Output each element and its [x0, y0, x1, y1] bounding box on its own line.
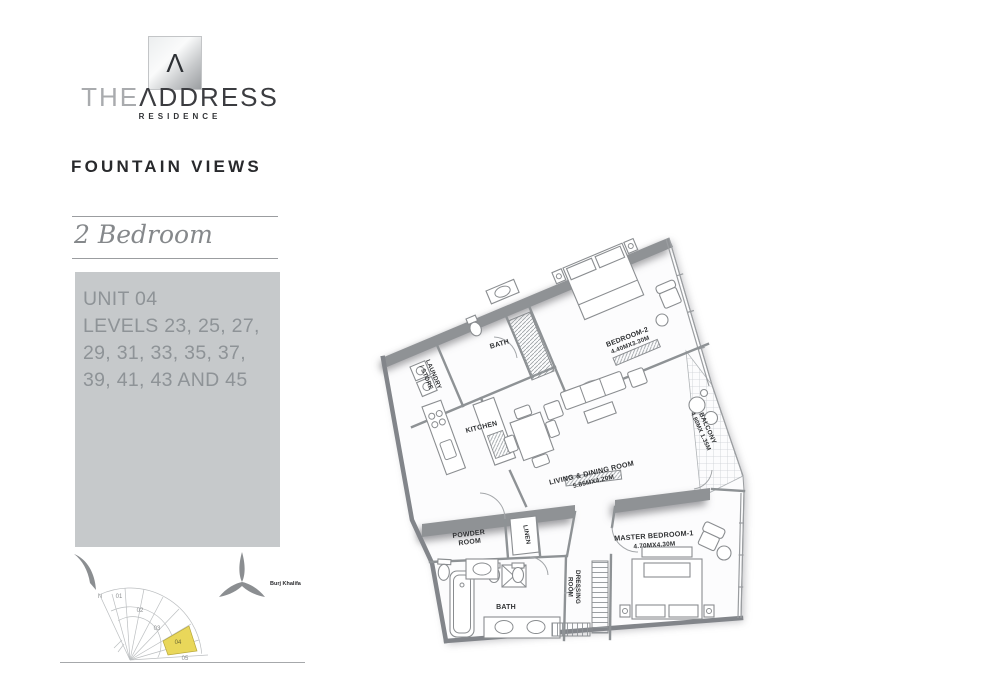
key-unit-03: 03	[154, 626, 161, 632]
svg-text:ROOM: ROOM	[567, 577, 574, 597]
unit-levels-2: 29, 31, 33, 35, 37,	[83, 340, 280, 367]
footer-rule	[60, 662, 305, 663]
divider	[72, 216, 278, 217]
key-unit-01: 01	[116, 594, 123, 600]
brand-name: THEΛDDRESS	[60, 82, 300, 113]
burj-khalifa-icon: Burj Khalifa	[219, 552, 302, 597]
bidet-bath-bottom	[512, 563, 524, 583]
logo-chevron-icon: Λ	[166, 50, 183, 76]
vanity-double	[484, 617, 560, 638]
key-unit-02: 02	[137, 608, 144, 614]
divider	[72, 258, 278, 259]
svg-text:DRESSING: DRESSING	[574, 570, 581, 604]
unit-type-label: 2 Bedroom	[74, 220, 213, 249]
key-unit-04: 04	[175, 640, 182, 646]
unit-levels-1: LEVELS 23, 25, 27,	[83, 313, 280, 340]
brand-address: ΛDDRESS	[139, 82, 279, 112]
ottoman-master	[717, 546, 731, 560]
floor-plan: LAUNDRY / STORE BATH KITCHEN BEDROOM-2 4…	[370, 225, 780, 670]
landmark-label: Burj Khalifa	[270, 581, 302, 587]
brand-the: THE	[81, 82, 139, 112]
unit-number: UNIT 04	[83, 286, 280, 313]
room-label-bath-bottom: BATH	[496, 604, 516, 611]
brochure-page: Λ THEΛDDRESS RESIDENCE FOUNTAIN VIEWS 2 …	[0, 0, 1000, 681]
brand-subtitle: RESIDENCE	[60, 112, 300, 121]
sink-bath-top	[486, 279, 519, 304]
ottoman-bedroom2	[656, 314, 668, 326]
unit-info-box: UNIT 04 LEVELS 23, 25, 27, 29, 31, 33, 3…	[75, 272, 280, 547]
key-plan: N 01 02 03 04 05 Burj	[60, 548, 310, 678]
unit-levels-3: 39, 41, 43 AND 45	[83, 367, 280, 394]
north-arrow-icon: N	[74, 554, 102, 600]
sink-powder	[466, 559, 498, 579]
key-plan-fan: 01 02 03 04 05	[100, 588, 208, 662]
bathtub	[450, 571, 474, 637]
project-title: FOUNTAIN VIEWS	[71, 157, 262, 177]
